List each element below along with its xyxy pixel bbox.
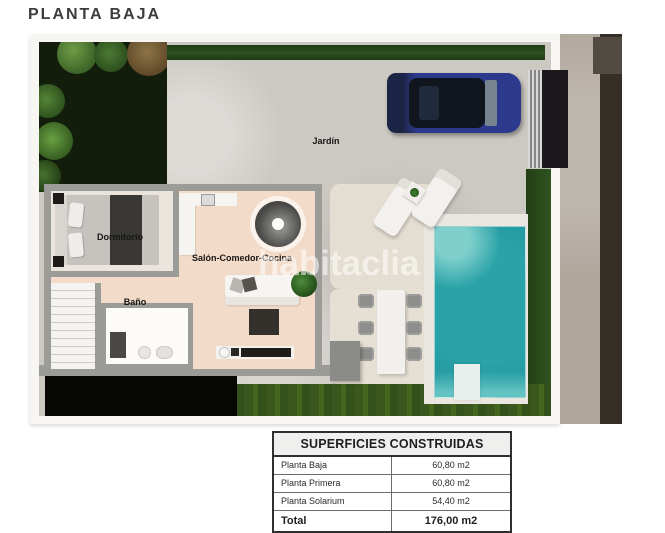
table-cell-value: 176,00 m2 <box>392 511 510 531</box>
bed-blanket <box>110 195 142 265</box>
driveway-gate <box>528 70 542 168</box>
car <box>387 73 521 133</box>
sideboard <box>249 309 279 335</box>
label-bano: Baño <box>105 297 165 307</box>
table-total-row: Total 176,00 m2 <box>274 511 510 531</box>
garden-top-left <box>39 42 167 192</box>
plant-icon <box>94 42 128 72</box>
sink <box>138 346 151 359</box>
table-cell-label: Planta Primera <box>274 475 392 492</box>
shower <box>110 332 126 358</box>
outdoor-dining-table <box>377 290 405 374</box>
table-row: Planta Baja 60,80 m2 <box>274 457 510 475</box>
bed-post <box>53 193 64 204</box>
page-title: PLANTA BAJA <box>28 6 161 24</box>
watermark: habitaclia <box>258 244 419 284</box>
outdoor-chair <box>358 321 374 335</box>
bed-headboard <box>55 195 67 265</box>
outdoor-chair <box>406 294 422 308</box>
plant-icon <box>408 186 420 198</box>
pool-shallow-end <box>435 371 525 397</box>
table-cell-label: Total <box>274 511 392 531</box>
flat-roof-structure <box>330 341 360 381</box>
sofa-pillow <box>242 277 258 293</box>
bed-pillow <box>68 202 84 227</box>
toilet <box>156 346 173 359</box>
plant-icon <box>39 84 65 118</box>
pool <box>434 226 526 398</box>
car-sunroof <box>419 86 439 120</box>
label-jardin: Jardín <box>296 136 356 146</box>
outdoor-chair <box>358 347 374 361</box>
bathroom <box>101 303 193 369</box>
car-windshield <box>485 80 497 126</box>
table-cell-label: Planta Baja <box>274 457 392 474</box>
table-cell-label: Planta Solarium <box>274 493 392 510</box>
gate-panel <box>542 70 568 168</box>
pool-step <box>454 364 480 400</box>
stairs <box>51 283 101 369</box>
plant-icon <box>127 42 167 76</box>
table-centerpiece <box>272 218 284 230</box>
outdoor-chair <box>406 347 422 361</box>
label-dormitorio: Dormitorio <box>75 232 165 242</box>
decor-frame <box>231 348 239 356</box>
table-row: Planta Primera 60,80 m2 <box>274 475 510 493</box>
road-block <box>593 37 622 74</box>
hedge-right <box>526 169 551 391</box>
hedge-top <box>167 45 545 60</box>
table-cell-value: 60,80 m2 <box>392 457 510 474</box>
kitchen-appliance <box>201 194 215 206</box>
lamp <box>219 347 230 358</box>
table-cell-value: 60,80 m2 <box>392 475 510 492</box>
table-cell-value: 54,40 m2 <box>392 493 510 510</box>
tv <box>241 348 291 357</box>
indoor-dining-table <box>255 201 301 247</box>
floor-plan: Jardín Dormitorio Salón-Comedor-Cocina B… <box>30 34 622 424</box>
outdoor-chair <box>358 294 374 308</box>
bed <box>55 195 159 265</box>
table-row: Planta Solarium 54,40 m2 <box>274 493 510 511</box>
bed-post <box>53 256 64 267</box>
plant-icon <box>39 122 73 160</box>
shaded-garden-area <box>45 375 237 416</box>
areas-table-header: SUPERFICIES CONSTRUIDAS <box>274 433 510 457</box>
outdoor-chair <box>406 321 422 335</box>
plant-icon <box>57 42 97 74</box>
road <box>600 34 622 424</box>
areas-table: SUPERFICIES CONSTRUIDAS Planta Baja 60,8… <box>272 431 512 533</box>
